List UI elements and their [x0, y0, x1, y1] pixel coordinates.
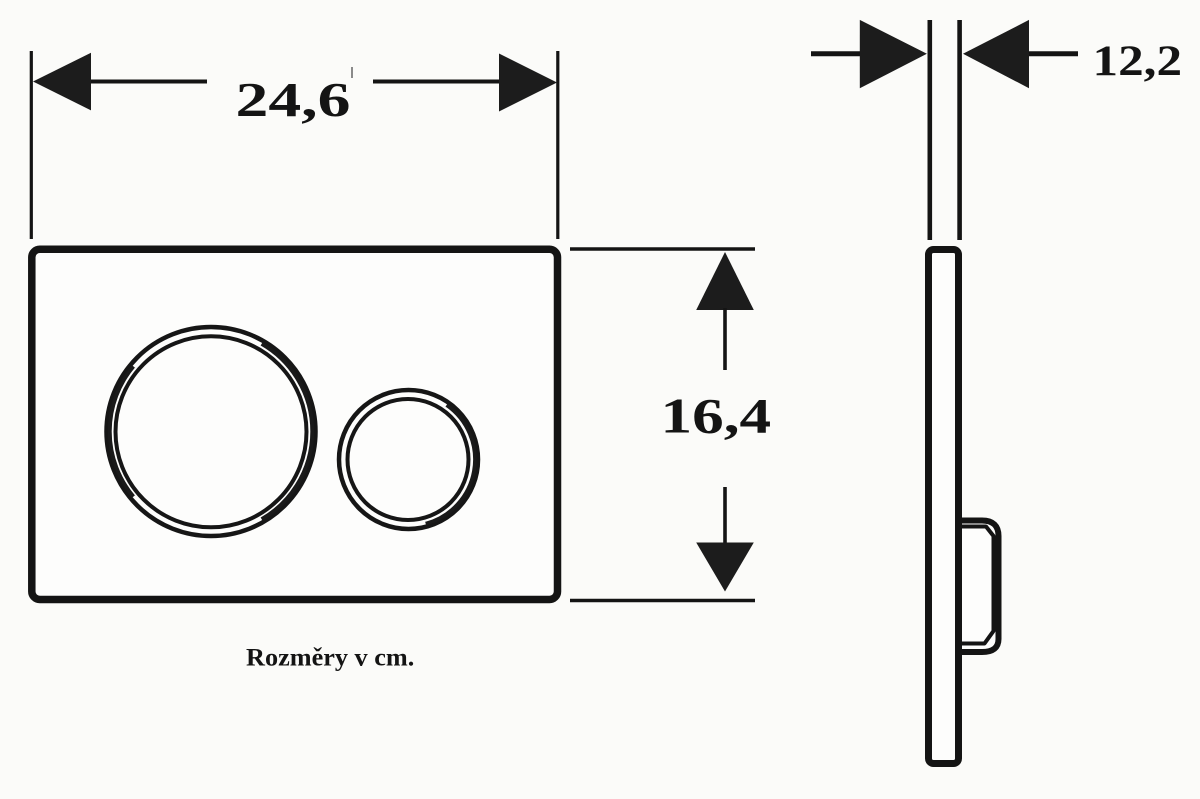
svg-text:16,4: 16,4 — [661, 389, 772, 444]
svg-text:Rozměry v cm.: Rozměry v cm. — [246, 643, 414, 671]
svg-text:24,6: 24,6 — [236, 74, 351, 127]
svg-text:12,2: 12,2 — [1093, 38, 1183, 85]
